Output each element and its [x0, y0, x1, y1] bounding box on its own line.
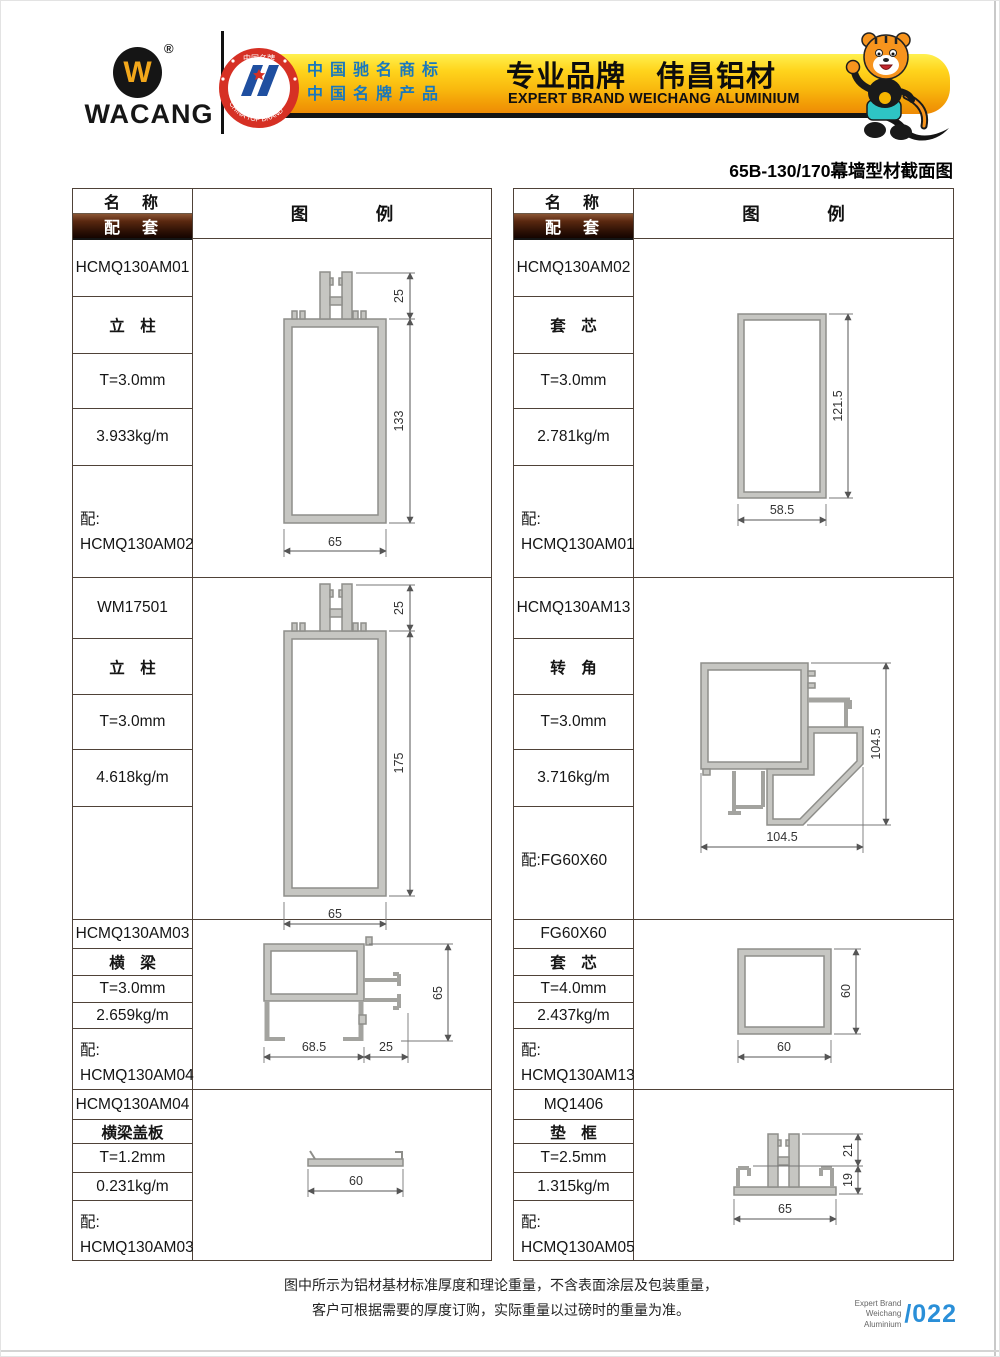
product-thickness: T=2.5mm [514, 1144, 633, 1173]
footer-brand-text: Expert Brand Weichang Aluminium [839, 1299, 901, 1330]
name-header-cell: 名 称 [514, 189, 633, 214]
product-type: 横梁盖板 [73, 1120, 192, 1144]
product-code: HCMQ130AM03 [73, 920, 192, 949]
product-type: 横 梁 [73, 949, 192, 977]
product-block-hcmq130am13: HCMQ130AM13 转 角 T=3.0mm 3.716kg/m 配:FG60… [514, 578, 953, 920]
diagram-cell [193, 578, 491, 919]
product-match: 配: HCMQ130AM01 [514, 466, 633, 577]
product-match: 配: HCMQ130AM05 [514, 1201, 633, 1261]
product-block-hcmq130am03: HCMQ130AM03 横 梁 T=3.0mm 2.659kg/m 配: HCM… [73, 920, 491, 1090]
claim-line-1: 中国驰名商标 [307, 59, 512, 83]
product-code: WM17501 [73, 578, 192, 639]
right-spec-table: 名 称 配 套 图 例 HCMQ130AM02 套 芯 T=3.0mm 2.78… [513, 188, 954, 1261]
brand-claims: 中国驰名商标 中国名牌产品 [307, 59, 512, 107]
product-type: 转 角 [514, 639, 633, 695]
product-block-fg60x60: FG60X60 套 芯 T=4.0mm 2.437kg/m 配: HCMQ130… [514, 920, 953, 1090]
logo-wordmark: WACANG [75, 99, 223, 130]
footer-brand: Expert Brand Weichang Aluminium /022 [839, 1299, 957, 1330]
product-type: 套 芯 [514, 297, 633, 354]
legend-header-cell: 图 例 [193, 189, 491, 238]
product-thickness: T=3.0mm [514, 354, 633, 409]
product-match [73, 807, 192, 919]
product-block-hcmq130am04: HCMQ130AM04 横梁盖板 T=1.2mm 0.231kg/m 配: HC… [73, 1090, 491, 1261]
product-weight: 3.933kg/m [73, 409, 192, 466]
product-weight: 2.659kg/m [73, 1003, 192, 1030]
logo-glyph: W [123, 56, 151, 90]
product-weight: 2.437kg/m [514, 1003, 633, 1030]
page-number: /022 [904, 1300, 957, 1329]
product-weight: 3.716kg/m [514, 750, 633, 807]
product-match: 配: HCMQ130AM03 [73, 1201, 192, 1261]
page-title: 65B-130/170幕墙型材截面图 [561, 158, 953, 183]
footer-notes: 图中所示为铝材基材标准厚度和理论重量，不含表面涂层及包装重量， 客户可根据需要的… [241, 1273, 761, 1322]
claim-line-2: 中国名牌产品 [307, 83, 512, 107]
product-match: 配: HCMQ130AM04 [73, 1029, 192, 1089]
registered-trademark-symbol: ® [164, 41, 174, 56]
product-thickness: T=3.0mm [514, 695, 633, 750]
diagram-cell [634, 1090, 953, 1261]
catalog-page: W ® WACANG 中国名牌 CHINA TOP BRAND 中国驰名商标 中… [0, 0, 1000, 1357]
product-weight: 0.231kg/m [73, 1173, 192, 1202]
product-thickness: T=1.2mm [73, 1144, 192, 1173]
legend-header-cell: 图 例 [634, 189, 953, 238]
product-weight: 2.781kg/m [514, 409, 633, 466]
tiger-mascot-icon [844, 27, 948, 143]
name-match-header: 名 称 配 套 [514, 189, 634, 238]
name-header-cell: 名 称 [73, 189, 192, 214]
product-thickness: T=3.0mm [73, 354, 192, 409]
product-block-hcmq130am01: HCMQ130AM01 立 柱 T=3.0mm 3.933kg/m 配: HCM… [73, 239, 491, 578]
right-table-header: 名 称 配 套 图 例 [514, 189, 953, 239]
diagram-cell [193, 1090, 491, 1261]
match-header-cell: 配 套 [73, 214, 192, 240]
product-type: 立 柱 [73, 297, 192, 354]
badge-top-text: 中国名牌 [243, 53, 275, 63]
wacang-logo-icon: W [113, 47, 162, 98]
product-match: 配: HCMQ130AM02 [73, 466, 192, 577]
diagram-cell [634, 578, 953, 919]
product-weight: 1.315kg/m [514, 1173, 633, 1202]
product-code: FG60X60 [514, 920, 633, 949]
product-thickness: T=3.0mm [73, 695, 192, 750]
brand-subtitle: EXPERT BRAND WEICHANG ALUMINIUM [508, 91, 853, 107]
name-match-header: 名 称 配 套 [73, 189, 193, 238]
diagram-cell [634, 920, 953, 1089]
product-match: 配: HCMQ130AM13 [514, 1029, 633, 1089]
match-header-cell: 配 套 [514, 214, 633, 240]
left-spec-table: 名 称 配 套 图 例 HCMQ130AM01 立 柱 T=3.0mm 3.93… [72, 188, 492, 1261]
product-thickness: T=4.0mm [514, 976, 633, 1003]
china-top-brand-badge: 中国名牌 CHINA TOP BRAND [211, 43, 309, 135]
product-code: HCMQ130AM13 [514, 578, 633, 639]
product-type: 套 芯 [514, 949, 633, 977]
diagram-cell [634, 239, 953, 577]
product-match: 配:FG60X60 [514, 807, 633, 919]
product-code: MQ1406 [514, 1090, 633, 1120]
product-block-hcmq130am02: HCMQ130AM02 套 芯 T=3.0mm 2.781kg/m 配: HCM… [514, 239, 953, 578]
product-code: HCMQ130AM04 [73, 1090, 192, 1120]
page-edge-right [994, 1, 996, 1357]
product-type: 垫 框 [514, 1120, 633, 1144]
product-code: HCMQ130AM02 [514, 239, 633, 297]
product-thickness: T=3.0mm [73, 976, 192, 1003]
product-code: HCMQ130AM01 [73, 239, 192, 297]
footer-note-line2: 客户可根据需要的厚度订购，实际重量以过磅时的重量为准。 [241, 1298, 761, 1323]
left-table-header: 名 称 配 套 图 例 [73, 189, 491, 239]
product-type: 立 柱 [73, 639, 192, 695]
product-block-mq1406: MQ1406 垫 框 T=2.5mm 1.315kg/m 配: HCMQ130A… [514, 1090, 953, 1261]
diagram-cell [193, 920, 491, 1089]
product-block-wm17501: WM17501 立 柱 T=3.0mm 4.618kg/m [73, 578, 491, 920]
diagram-cell [193, 239, 491, 577]
page-edge-bottom [1, 1350, 1000, 1352]
brand-title: 专业品牌 伟昌铝材 [506, 53, 851, 95]
footer-note-line1: 图中所示为铝材基材标准厚度和理论重量，不含表面涂层及包装重量， [241, 1273, 761, 1298]
product-weight: 4.618kg/m [73, 750, 192, 807]
